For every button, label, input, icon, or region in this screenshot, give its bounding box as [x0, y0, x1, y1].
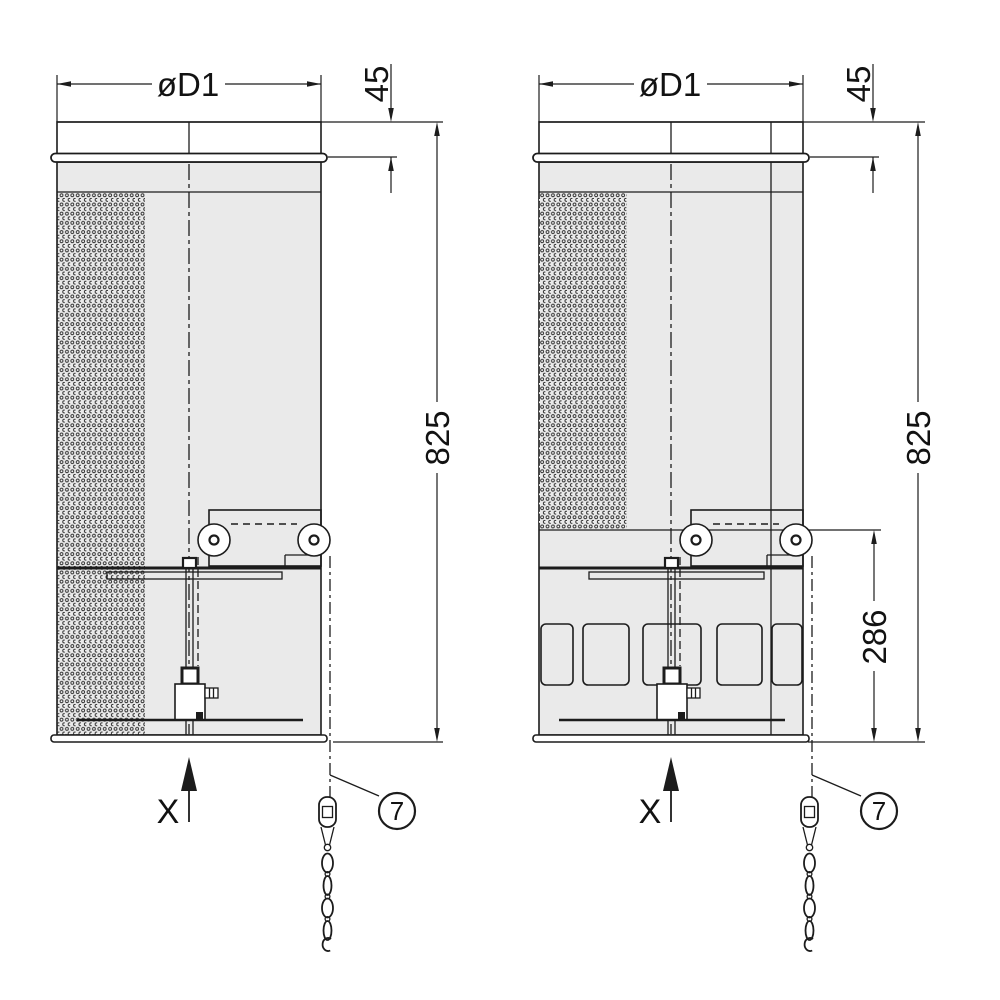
- pulley-axle: [692, 536, 701, 545]
- view-direction-arrow: X: [157, 757, 197, 831]
- overall-height-dim-label: 825: [419, 410, 456, 465]
- overall-height-dim-label: 825: [900, 410, 937, 465]
- pull-chain: [319, 797, 336, 951]
- rod-collar: [665, 558, 678, 568]
- left-silencer-view: øD1 45 825 X: [51, 64, 456, 951]
- technical-drawing: øD1 45 825 X: [0, 0, 1000, 1000]
- damper-section-dim-label: 286: [856, 609, 893, 664]
- turnbuckle: [182, 668, 198, 684]
- perforated-liner: [539, 193, 627, 529]
- collar-dim-label: 45: [840, 66, 877, 103]
- pull-chain: [801, 797, 818, 951]
- bottom-rim: [533, 735, 809, 742]
- flange: [51, 154, 327, 163]
- callout-leader: [330, 775, 379, 796]
- callout-7-label: 7: [390, 796, 404, 826]
- overall-height-dimension: 825: [333, 122, 456, 742]
- pulley-axle: [210, 536, 219, 545]
- collar-dim-label: 45: [358, 66, 395, 103]
- view-direction-arrow: X: [639, 757, 679, 831]
- callout-leader: [812, 775, 861, 796]
- view-x-label: X: [639, 793, 662, 831]
- diameter-dim-label: øD1: [639, 66, 701, 103]
- flange: [533, 154, 809, 163]
- collar-height-dimension: 45: [840, 64, 877, 193]
- view-x-label: X: [157, 793, 180, 831]
- callout-7-balloon: 7: [330, 775, 415, 829]
- perforated-liner: [57, 193, 145, 735]
- actuator-knob: [687, 688, 700, 698]
- collar-height-dimension: 45: [358, 64, 395, 193]
- damper-section-dimension: 286: [856, 530, 893, 742]
- callout-7-balloon: 7: [812, 775, 897, 829]
- right-silencer-view: øD1 45 825 286: [533, 64, 937, 951]
- pulley-axle: [310, 536, 319, 545]
- bottom-rim: [51, 735, 327, 742]
- diameter-dimension: øD1: [539, 66, 803, 122]
- diameter-dimension: øD1: [57, 66, 321, 122]
- pulley-axle: [792, 536, 801, 545]
- actuator-knob: [205, 688, 218, 698]
- drawing-canvas: øD1 45 825 X: [0, 0, 1000, 1000]
- callout-7-label: 7: [872, 796, 886, 826]
- turnbuckle: [664, 668, 680, 684]
- rod-collar: [183, 558, 196, 568]
- diameter-dim-label: øD1: [157, 66, 219, 103]
